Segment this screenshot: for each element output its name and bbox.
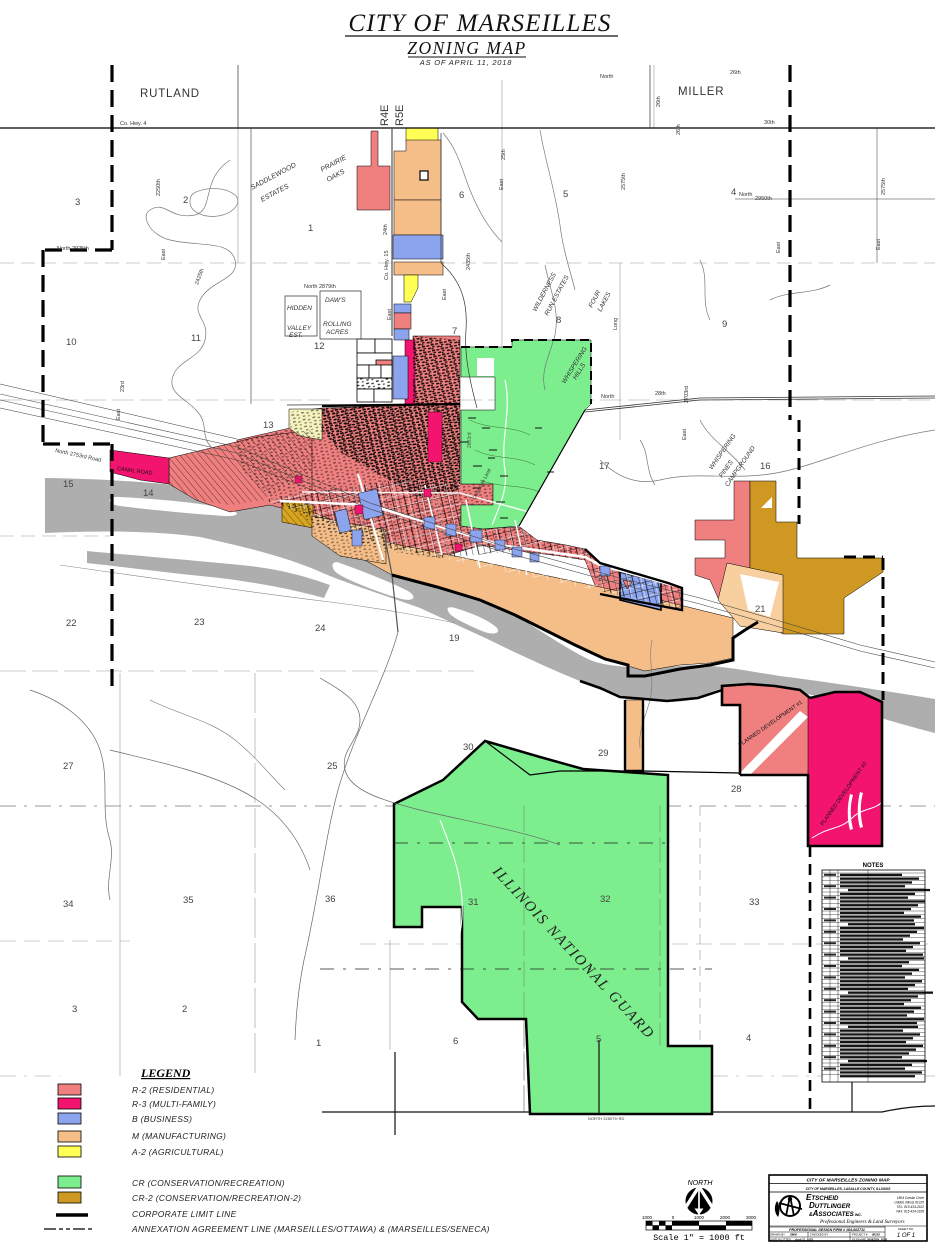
svg-text:26th: 26th (730, 70, 741, 76)
svg-text:CR-2 (CONSERVATION/RECREATION: CR-2 (CONSERVATION/RECREATION-2) (132, 1193, 301, 1203)
svg-text:MILLER: MILLER (678, 86, 724, 98)
svg-text:East: East (116, 409, 122, 420)
svg-text:30th: 30th (764, 120, 775, 126)
svg-text:19: 19 (449, 633, 460, 644)
svg-text:TEL: 815-434-2922: TEL: 815-434-2922 (897, 1205, 925, 1209)
svg-text:21: 21 (755, 604, 766, 615)
svg-text:ACRES: ACRES (325, 329, 349, 336)
svg-text:East: East (682, 429, 688, 440)
svg-text:ROLLING: ROLLING (323, 321, 352, 328)
svg-text:Co. Hwy. 15: Co. Hwy. 15 (384, 250, 390, 280)
svg-text:Co. Hwy. 4: Co. Hwy. 4 (120, 121, 147, 127)
svg-text:1000: 1000 (694, 1215, 705, 1220)
svg-text:15: 15 (63, 479, 74, 490)
svg-text:North: North (600, 74, 613, 80)
svg-text:SHEET NO.: SHEET NO. (898, 1227, 914, 1231)
svg-text:32: 32 (600, 894, 611, 905)
svg-text:2: 2 (182, 1004, 187, 1015)
svg-text:7: 7 (452, 326, 457, 337)
svg-text:1804 Crestal Circle: 1804 Crestal Circle (897, 1196, 924, 1200)
svg-text:East: East (876, 239, 882, 250)
svg-text:EST.: EST. (289, 332, 303, 339)
svg-text:PROJECT #: PROJECT # (852, 1233, 868, 1237)
svg-text:HIDDEN: HIDDEN (287, 305, 312, 312)
svg-text:Oddell, Illinois 61320: Oddell, Illinois 61320 (894, 1201, 924, 1205)
svg-text:6: 6 (459, 190, 464, 201)
svg-text:11: 11 (191, 333, 201, 344)
svg-text:R-2 (RESIDENTIAL): R-2 (RESIDENTIAL) (132, 1085, 215, 1095)
svg-text:5: 5 (563, 189, 568, 200)
svg-text:1000: 1000 (642, 1215, 653, 1220)
svg-text:5: 5 (596, 1034, 601, 1045)
svg-text:CORPORATE LIMIT LINE: CORPORATE LIMIT LINE (132, 1209, 237, 1219)
svg-text:2603rd: 2603rd (467, 432, 473, 448)
svg-text:4: 4 (731, 187, 736, 198)
svg-text:North 2879th: North 2879th (304, 284, 336, 290)
svg-text:30: 30 (463, 742, 474, 753)
svg-text:1: 1 (308, 223, 313, 234)
svg-text:CITY OF MARSEILLES ZONING MAP: CITY OF MARSEILLES ZONING MAP (806, 1178, 890, 1184)
svg-text:3: 3 (75, 197, 80, 208)
svg-text:16: 16 (760, 461, 771, 472)
svg-text:PROFESSIONAL DESIGN FIRM # 184: PROFESSIONAL DESIGN FIRM # 184-002711 (789, 1228, 865, 1232)
svg-text:6: 6 (453, 1036, 458, 1047)
svg-text:North: North (739, 192, 752, 198)
svg-text:NOTES: NOTES (863, 863, 884, 869)
svg-text:27: 27 (63, 761, 74, 772)
svg-text:26th: 26th (656, 96, 662, 107)
svg-text:25: 25 (327, 761, 338, 772)
svg-text:CHECKED BY: CHECKED BY (810, 1233, 829, 1237)
svg-text:2703rd: 2703rd (684, 386, 690, 403)
svg-text:DAW'S: DAW'S (325, 297, 346, 304)
svg-text:A-2 (AGRICULTURAL): A-2 (AGRICULTURAL) (131, 1147, 224, 1157)
svg-text:29: 29 (598, 748, 609, 759)
svg-text:North: North (601, 394, 614, 400)
svg-text:Professional Engineers & La: Professional Engineers & Land Surveyors (819, 1220, 905, 1225)
svg-text:10: 10 (66, 337, 77, 348)
svg-text:East: East (161, 249, 167, 260)
svg-text:2250th: 2250th (156, 179, 162, 196)
svg-text:CITY OF MARSEILLES, LASALLE CO: CITY OF MARSEILLES, LASALLE COUNTY, ILLI… (806, 1187, 892, 1191)
svg-text:1 OF 1: 1 OF 1 (897, 1233, 915, 1239)
svg-text:R5E: R5E (394, 105, 406, 126)
svg-text:M (MANUFACTURING): M (MANUFACTURING) (132, 1131, 226, 1141)
svg-text:28th: 28th (655, 391, 666, 397)
svg-text:2435th: 2435th (466, 253, 472, 270)
svg-text:North 2925th: North 2925th (57, 246, 89, 252)
svg-text:9: 9 (722, 319, 727, 330)
svg-text:B (BUSINESS): B (BUSINESS) (132, 1114, 192, 1124)
svg-text:12: 12 (314, 341, 325, 352)
svg-text:April 11, 2018: April 11, 2018 (794, 1238, 813, 1242)
svg-text:East: East (776, 242, 782, 253)
svg-text:2: 2 (183, 195, 188, 206)
svg-text:17: 17 (599, 461, 610, 472)
svg-text:31: 31 (468, 897, 479, 908)
svg-text:1: 1 (316, 1038, 321, 1049)
svg-text:R4E: R4E (379, 105, 391, 126)
svg-text:20: 20 (598, 573, 609, 584)
svg-text:FILENAME: FILENAME (852, 1238, 866, 1242)
svg-text:13: 13 (263, 420, 274, 431)
svg-text:4: 4 (746, 1033, 751, 1044)
svg-text:98235: 98235 (872, 1233, 880, 1237)
svg-text:25th: 25th (501, 149, 507, 160)
svg-text:22: 22 (66, 618, 77, 629)
svg-text:SMM: SMM (790, 1233, 797, 1237)
svg-text:2950th: 2950th (755, 196, 772, 202)
svg-text:24: 24 (315, 623, 326, 634)
svg-text:3: 3 (72, 1004, 77, 1015)
svg-text:East: East (387, 309, 393, 320)
svg-text:8: 8 (556, 315, 561, 326)
svg-text:FAX: 815-434-2928: FAX: 815-434-2928 (896, 1210, 924, 1214)
svg-text:28: 28 (731, 784, 742, 795)
svg-text:14: 14 (143, 488, 154, 499)
svg-text:24th: 24th (383, 224, 389, 235)
svg-text:East: East (442, 289, 448, 300)
svg-text:35: 35 (183, 895, 194, 906)
svg-text:East: East (499, 179, 505, 190)
svg-text:2000: 2000 (720, 1215, 731, 1220)
svg-text:ANNEXATION AGREEMENT LINE (: ANNEXATION AGREEMENT LINE (MARSEILLES/OT… (131, 1224, 490, 1234)
svg-text:Scale 1" = 1000 ft: Scale 1" = 1000 ft (653, 1233, 745, 1243)
svg-text:RUTLAND: RUTLAND (140, 88, 200, 100)
svg-text:2009ZON_2018: 2009ZON_2018 (866, 1238, 887, 1242)
svg-text:ZONING MAP: ZONING MAP (407, 38, 527, 58)
svg-text:AS OF APRIL 11, 2018: AS OF APRIL 11, 2018 (419, 58, 512, 67)
svg-text:2575th: 2575th (621, 173, 627, 190)
svg-text:2575th: 2575th (881, 178, 887, 195)
svg-text:CITY OF MARSEILLES: CITY OF MARSEILLES (348, 10, 611, 37)
svg-text:DATE PLOTTED: DATE PLOTTED (770, 1238, 791, 1242)
svg-text:26th: 26th (676, 124, 682, 135)
svg-text:34: 34 (63, 899, 74, 910)
svg-text:Long: Long (613, 318, 619, 330)
svg-text:3000: 3000 (746, 1215, 757, 1220)
svg-text:NORTH 3250TH RD: NORTH 3250TH RD (588, 1116, 624, 1121)
svg-text:R-3 (MULTI-FAMILY): R-3 (MULTI-FAMILY) (132, 1099, 216, 1109)
svg-text:33: 33 (749, 897, 760, 908)
svg-text:DRAWN BY: DRAWN BY (770, 1233, 786, 1237)
svg-text:23: 23 (194, 617, 205, 628)
svg-text:CR (CONSERVATION/RECREATION): CR (CONSERVATION/RECREATION) (132, 1178, 285, 1188)
svg-text:23rd: 23rd (120, 381, 126, 392)
svg-text:LEGEND: LEGEND (140, 1066, 191, 1080)
svg-text:36: 36 (325, 894, 336, 905)
svg-text:VALLEY: VALLEY (287, 325, 312, 332)
